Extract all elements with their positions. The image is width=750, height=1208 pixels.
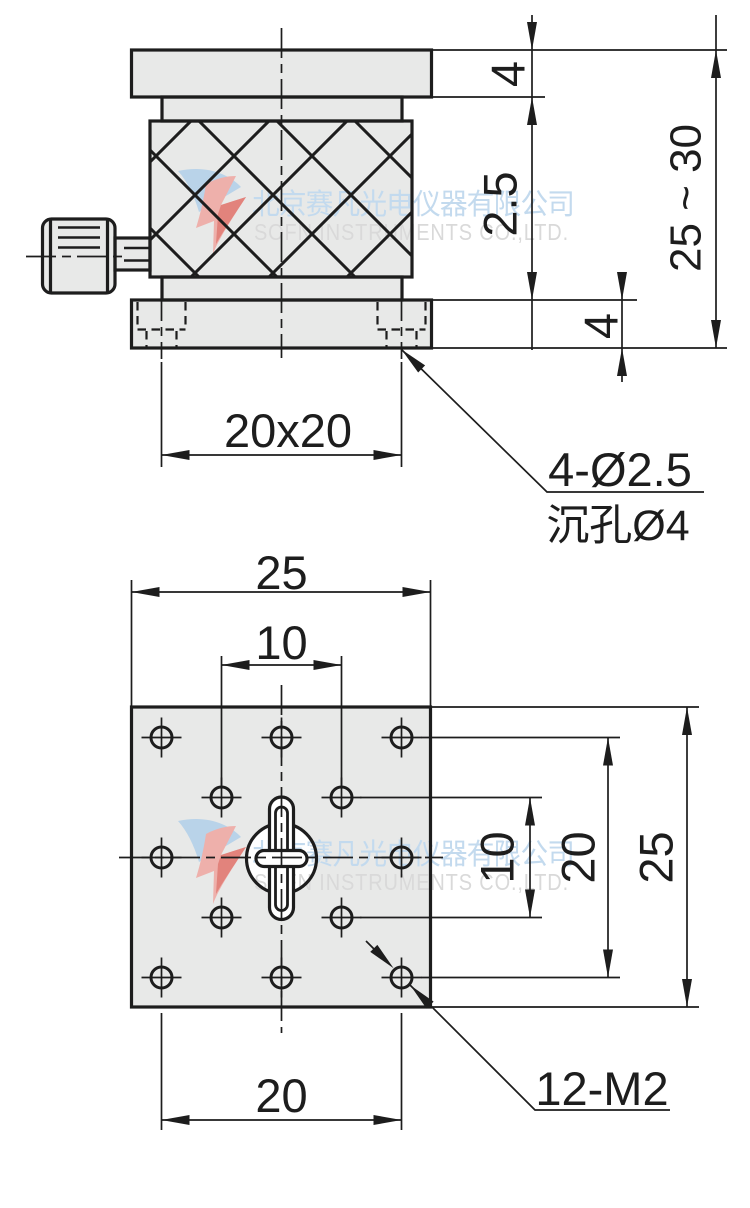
dim-label-inner-spacing-v: 10 [470, 831, 523, 883]
dim-label-outer-spacing-h: 20 [255, 1069, 307, 1122]
dim-label-top-plate-thickness: 4 [481, 61, 534, 87]
knob-shaft-fill [115, 238, 150, 270]
callout-tapped-holes: 12-M2 [535, 1062, 668, 1115]
dim-label-base-hole-pattern: 20x20 [224, 404, 352, 457]
dim-label-inner-spacing-h: 10 [255, 616, 307, 669]
dim-label-plate-height: 25 [629, 831, 682, 883]
dim-label-bottom-plate-thickness: 4 [574, 313, 627, 339]
dim-label-plate-width: 25 [255, 546, 307, 599]
callout-counterbore: 沉孔Ø4 [546, 502, 689, 550]
callout-hole-size: 4-Ø2.5 [548, 443, 692, 496]
dim-label-outer-spacing-v: 20 [551, 831, 604, 883]
technical-drawing-svg: 北京赛凡光电仪器有限公司 SOFN INSTRUMENTS CO.,LTD. [0, 0, 750, 1208]
dim-label-travel: 2.5 [473, 171, 526, 236]
dim-label-overall-height: 25 ~ 30 [661, 124, 710, 272]
drawing-page: 北京赛凡光电仪器有限公司 SOFN INSTRUMENTS CO.,LTD. [0, 0, 750, 1208]
